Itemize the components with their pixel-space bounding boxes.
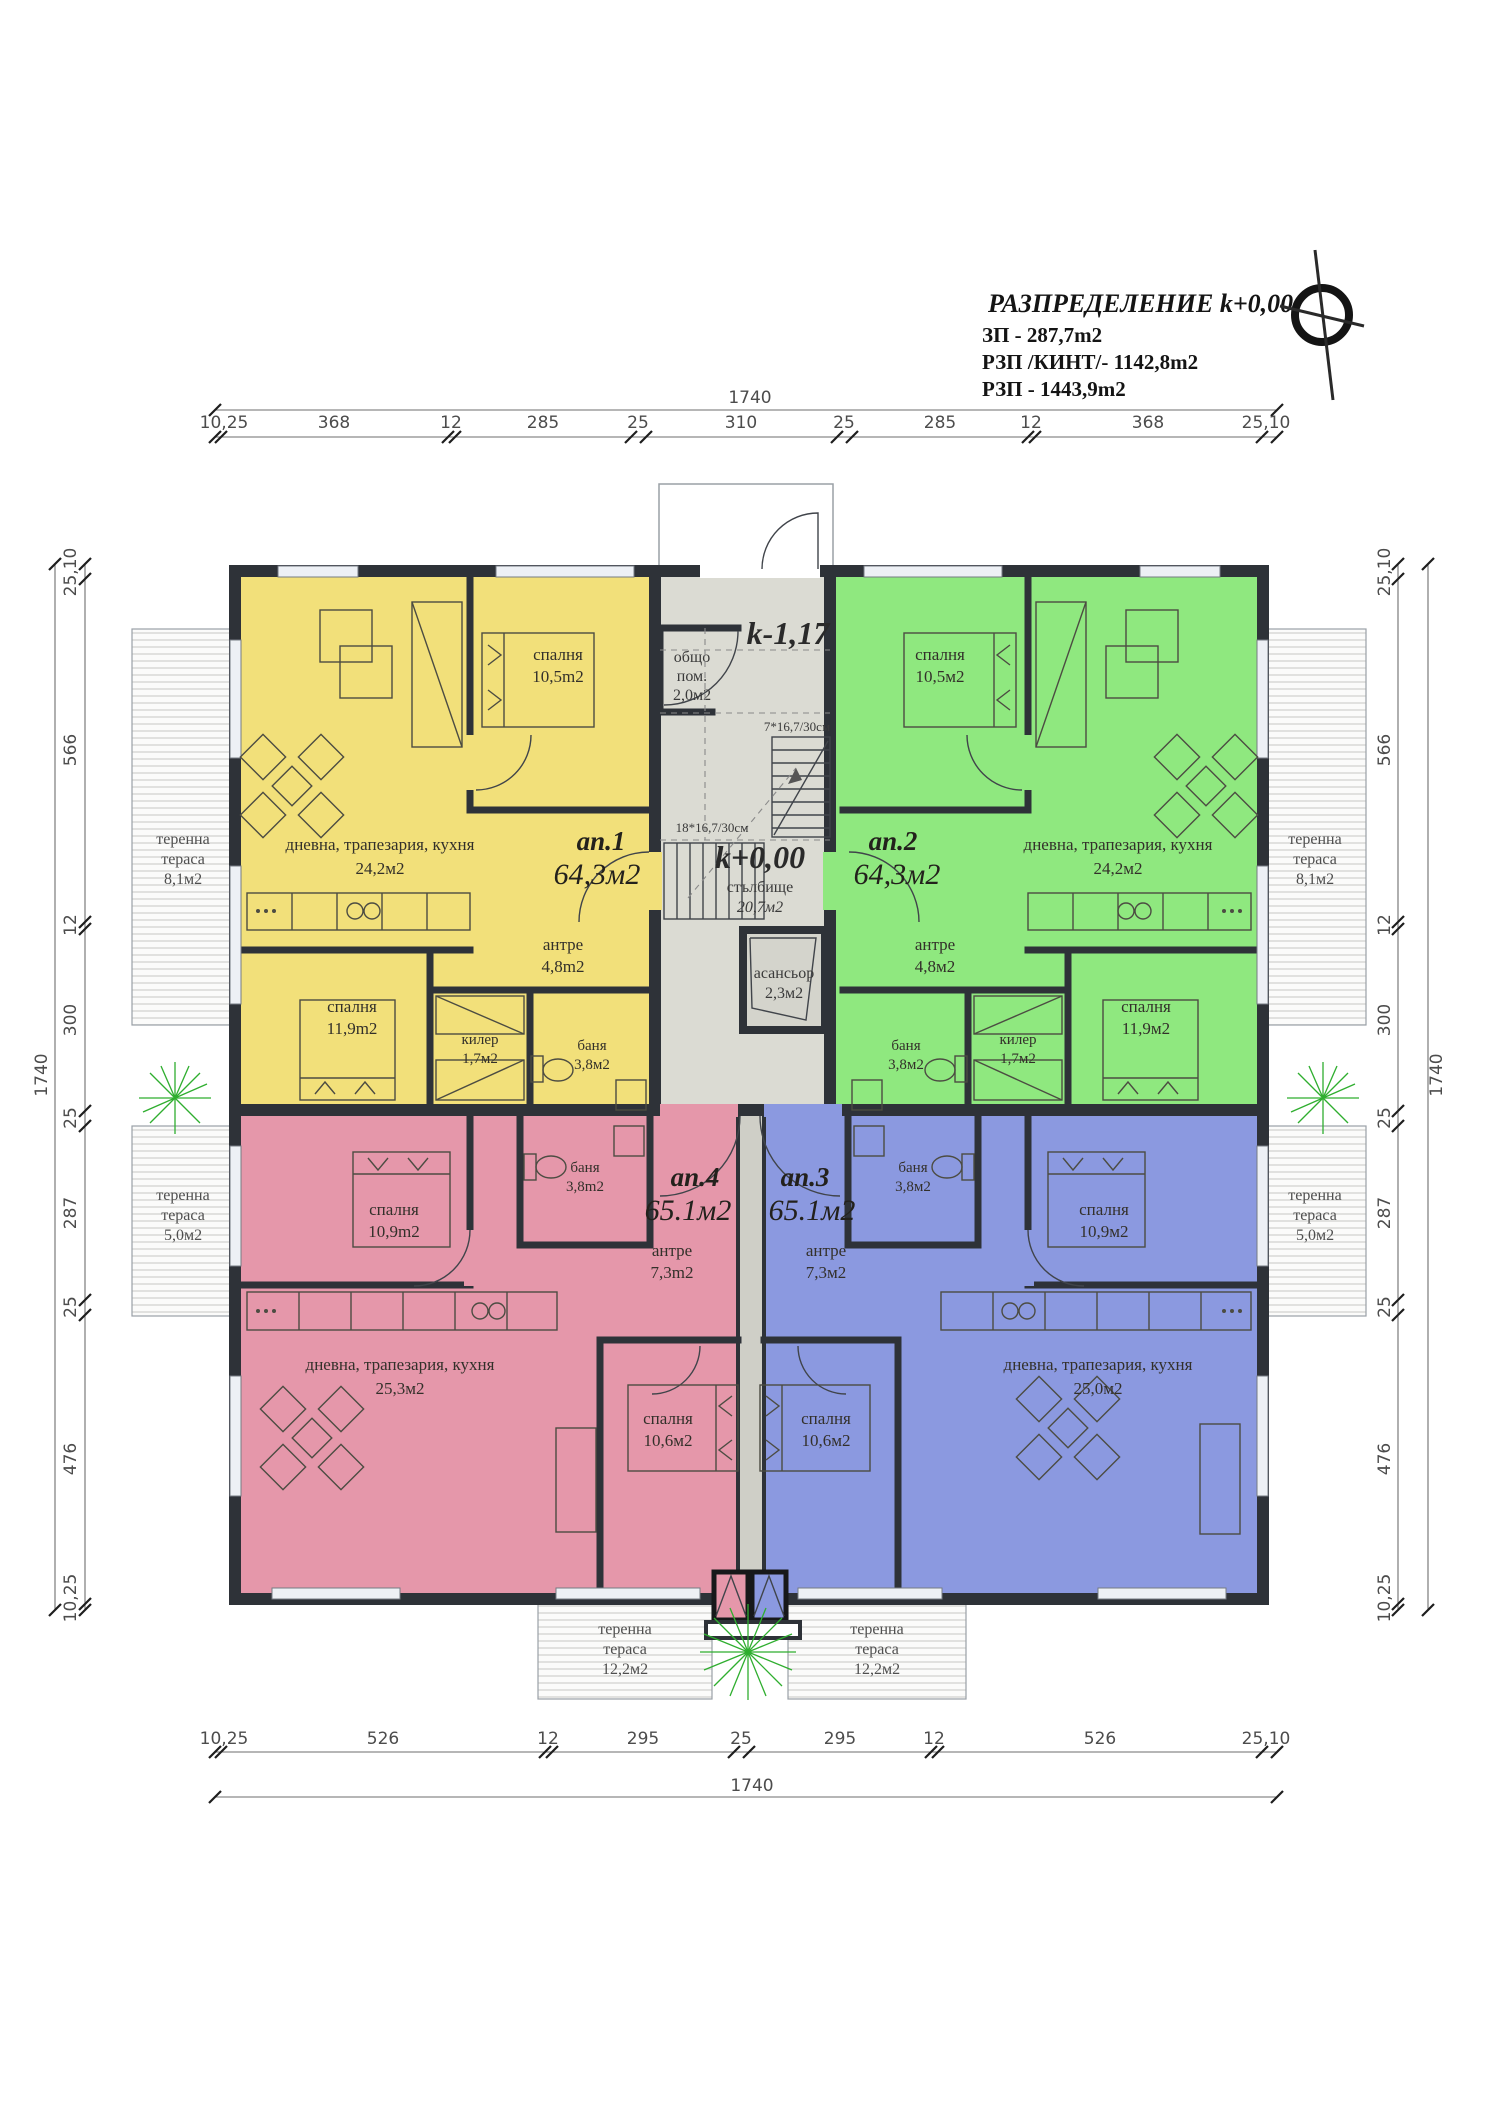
dimension-total: 1740 bbox=[728, 388, 771, 408]
svg-text:4,8m2: 4,8m2 bbox=[542, 957, 585, 976]
svg-text:тераса: тераса bbox=[603, 1641, 647, 1658]
tree bbox=[139, 1062, 211, 1134]
svg-text:25: 25 bbox=[833, 413, 855, 433]
svg-text:295: 295 bbox=[627, 1729, 659, 1749]
svg-text:7*16,7/30см: 7*16,7/30см bbox=[764, 719, 830, 734]
svg-text:дневна, трапезария, кухня: дневна, трапезария, кухня bbox=[286, 835, 475, 854]
svg-text:8,1м2: 8,1м2 bbox=[164, 871, 202, 888]
basement-light-wells bbox=[706, 1572, 800, 1638]
svg-text:спалня: спалня bbox=[643, 1409, 693, 1428]
dimension-bottom: 10,25 526 12 295 25 295 12 526 25,10 174… bbox=[200, 1729, 1291, 1803]
svg-text:7,3м2: 7,3м2 bbox=[806, 1263, 847, 1282]
terrace-left-mid-label: теренна тераса 5,0м2 bbox=[156, 1187, 209, 1244]
elevator: асансьор 2,3м2 bbox=[743, 930, 825, 1030]
svg-text:дневна, трапезария, кухня: дневна, трапезария, кухня bbox=[1004, 1355, 1193, 1374]
svg-text:теренна: теренна bbox=[156, 1187, 209, 1204]
dimension-total: 1740 bbox=[32, 1053, 52, 1096]
svg-text:баня: баня bbox=[577, 1038, 606, 1054]
apartment-area: 65.1м2 bbox=[769, 1194, 856, 1227]
entry-level-label: k-1,17 bbox=[747, 615, 832, 651]
svg-text:368: 368 bbox=[318, 413, 350, 433]
apartment-id: ап.3 bbox=[781, 1162, 830, 1192]
svg-text:11,9м2: 11,9м2 bbox=[1122, 1019, 1170, 1038]
svg-text:566: 566 bbox=[61, 734, 81, 766]
title-block: РАЗПРЕДЕЛЕНИЕ k+0,00 ЗП - 287,7m2 РЗП /К… bbox=[982, 289, 1293, 401]
svg-text:антре: антре bbox=[543, 935, 583, 954]
svg-text:25,10: 25,10 bbox=[1375, 548, 1395, 597]
svg-text:10,25: 10,25 bbox=[200, 413, 249, 433]
svg-text:12: 12 bbox=[537, 1729, 559, 1749]
svg-text:10,6м2: 10,6м2 bbox=[801, 1431, 850, 1450]
svg-text:526: 526 bbox=[1084, 1729, 1116, 1749]
tree bbox=[1287, 1062, 1359, 1134]
svg-text:25,10: 25,10 bbox=[1242, 1729, 1291, 1749]
north-arrow-icon bbox=[1280, 250, 1364, 400]
svg-text:антре: антре bbox=[915, 935, 955, 954]
svg-text:теренна: теренна bbox=[1288, 831, 1341, 848]
svg-text:25: 25 bbox=[1375, 1107, 1395, 1129]
svg-text:пом.: пом. bbox=[677, 668, 707, 685]
svg-text:300: 300 bbox=[61, 1004, 81, 1036]
svg-text:спалня: спалня bbox=[801, 1409, 851, 1428]
svg-text:3,8m2: 3,8m2 bbox=[566, 1179, 604, 1195]
svg-text:спалня: спалня bbox=[533, 645, 583, 664]
svg-text:12: 12 bbox=[61, 914, 81, 936]
svg-text:10,25: 10,25 bbox=[1375, 1574, 1395, 1623]
apartment-area: 64,3м2 bbox=[854, 858, 941, 891]
dimension-total: 1740 bbox=[730, 1776, 773, 1796]
svg-text:1,7м2: 1,7м2 bbox=[462, 1051, 498, 1067]
svg-text:спалня: спалня bbox=[1079, 1200, 1129, 1219]
sheet-title: РАЗПРЕДЕЛЕНИЕ k+0,00 bbox=[987, 289, 1293, 318]
apartment-id: ап.1 bbox=[577, 826, 626, 856]
floor-level-label: k+0,00 bbox=[715, 839, 805, 875]
elevator-label: асансьор bbox=[754, 965, 814, 982]
apartment-id: ап.2 bbox=[869, 826, 918, 856]
svg-text:295: 295 bbox=[824, 1729, 856, 1749]
svg-text:287: 287 bbox=[61, 1197, 81, 1229]
svg-text:566: 566 bbox=[1375, 734, 1395, 766]
svg-text:килер: килер bbox=[462, 1032, 499, 1048]
svg-text:теренна: теренна bbox=[1288, 1187, 1341, 1204]
svg-text:баня: баня bbox=[898, 1160, 927, 1176]
svg-text:25,10: 25,10 bbox=[61, 548, 81, 597]
svg-text:дневна, трапезария, кухня: дневна, трапезария, кухня bbox=[306, 1355, 495, 1374]
terrace-left-top-label: теренна тераса 8,1м2 bbox=[156, 831, 209, 888]
svg-text:10,5м2: 10,5м2 bbox=[915, 667, 964, 686]
svg-text:3,8м2: 3,8м2 bbox=[888, 1057, 924, 1073]
stairwell-area: 20,7м2 bbox=[737, 899, 783, 916]
svg-text:1,7м2: 1,7м2 bbox=[1000, 1051, 1036, 1067]
svg-text:антре: антре bbox=[652, 1241, 692, 1260]
svg-text:4,8м2: 4,8м2 bbox=[915, 957, 956, 976]
svg-text:285: 285 bbox=[924, 413, 956, 433]
svg-text:спалня: спалня bbox=[915, 645, 965, 664]
svg-text:тераса: тераса bbox=[1293, 1207, 1337, 1224]
terrace-bottom-left-label: теренна тераса 12,2м2 bbox=[598, 1621, 651, 1678]
svg-text:25,0м2: 25,0м2 bbox=[1073, 1379, 1122, 1398]
svg-text:476: 476 bbox=[61, 1443, 81, 1475]
svg-text:тераса: тераса bbox=[1293, 851, 1337, 868]
svg-text:килер: килер bbox=[1000, 1032, 1037, 1048]
apartment-area: 64,3м2 bbox=[554, 858, 641, 891]
floor-plan-sheet: РАЗПРЕДЕЛЕНИЕ k+0,00 ЗП - 287,7m2 РЗП /К… bbox=[0, 0, 1500, 2122]
zp-value: ЗП - 287,7m2 bbox=[982, 323, 1102, 347]
svg-text:25: 25 bbox=[61, 1296, 81, 1318]
apartment-4-region bbox=[241, 1110, 738, 1593]
svg-text:25: 25 bbox=[61, 1107, 81, 1129]
svg-text:18*16,7/30см: 18*16,7/30см bbox=[676, 820, 749, 835]
svg-text:теренна: теренна bbox=[850, 1621, 903, 1638]
tree bbox=[700, 1604, 796, 1700]
rzp-kint-value: РЗП /КИНТ/- 1142,8m2 bbox=[982, 350, 1198, 374]
svg-text:10,9м2: 10,9м2 bbox=[1079, 1222, 1128, 1241]
svg-text:12,2м2: 12,2м2 bbox=[602, 1661, 648, 1678]
svg-text:285: 285 bbox=[527, 413, 559, 433]
terrace-left-top bbox=[132, 629, 235, 1025]
svg-text:10,6м2: 10,6м2 bbox=[643, 1431, 692, 1450]
rzp-value: РЗП - 1443,9m2 bbox=[982, 377, 1126, 401]
terrace-right-top-label: теренна тераса 8,1м2 bbox=[1288, 831, 1341, 888]
svg-text:12: 12 bbox=[440, 413, 462, 433]
svg-text:25,3м2: 25,3м2 bbox=[375, 1379, 424, 1398]
party-wall bbox=[738, 1110, 764, 1599]
svg-text:368: 368 bbox=[1132, 413, 1164, 433]
svg-text:теренна: теренна bbox=[156, 831, 209, 848]
svg-text:баня: баня bbox=[891, 1038, 920, 1054]
svg-text:теренна: теренна bbox=[598, 1621, 651, 1638]
svg-text:тераса: тераса bbox=[855, 1641, 899, 1658]
svg-text:дневна, трапезария, кухня: дневна, трапезария, кухня bbox=[1024, 835, 1213, 854]
svg-text:25,10: 25,10 bbox=[1242, 413, 1291, 433]
apartment-id: ап.4 bbox=[671, 1162, 720, 1192]
svg-text:25: 25 bbox=[627, 413, 649, 433]
svg-text:24,2м2: 24,2м2 bbox=[355, 859, 404, 878]
stairwell-label: стълбище bbox=[727, 879, 793, 896]
svg-text:12: 12 bbox=[1020, 413, 1042, 433]
svg-text:тераса: тераса bbox=[161, 851, 205, 868]
svg-text:310: 310 bbox=[725, 413, 757, 433]
svg-text:300: 300 bbox=[1375, 1004, 1395, 1036]
svg-text:11,9m2: 11,9m2 bbox=[327, 1019, 378, 1038]
svg-text:12: 12 bbox=[1375, 914, 1395, 936]
terrace-right-mid-label: теренна тераса 5,0м2 bbox=[1288, 1187, 1341, 1244]
dimension-total: 1740 bbox=[1427, 1053, 1447, 1096]
svg-text:3,8м2: 3,8м2 bbox=[574, 1057, 610, 1073]
svg-text:287: 287 bbox=[1375, 1197, 1395, 1229]
apartment-fills bbox=[241, 571, 1257, 1599]
apartment-area: 65.1м2 bbox=[645, 1194, 732, 1227]
svg-text:8,1м2: 8,1м2 bbox=[1296, 871, 1334, 888]
svg-text:526: 526 bbox=[367, 1729, 399, 1749]
svg-text:10,25: 10,25 bbox=[200, 1729, 249, 1749]
svg-text:тераса: тераса bbox=[161, 1207, 205, 1224]
svg-text:10,5m2: 10,5m2 bbox=[532, 667, 583, 686]
svg-text:спалня: спалня bbox=[1121, 997, 1171, 1016]
svg-text:12,2м2: 12,2м2 bbox=[854, 1661, 900, 1678]
terrace-right-top bbox=[1263, 629, 1366, 1025]
svg-text:476: 476 bbox=[1375, 1443, 1395, 1475]
svg-text:антре: антре bbox=[806, 1241, 846, 1260]
dimension-left: 1740 25,10 566 12 300 25 287 25 476 10,2… bbox=[32, 548, 91, 1623]
svg-text:5,0м2: 5,0м2 bbox=[1296, 1227, 1334, 1244]
floor-plan-drawing: РАЗПРЕДЕЛЕНИЕ k+0,00 ЗП - 287,7m2 РЗП /К… bbox=[0, 0, 1500, 2122]
svg-text:7,3m2: 7,3m2 bbox=[651, 1263, 694, 1282]
svg-text:24,2м2: 24,2м2 bbox=[1093, 859, 1142, 878]
elevator-area: 2,3м2 bbox=[765, 985, 803, 1002]
svg-text:баня: баня bbox=[570, 1160, 599, 1176]
svg-text:25: 25 bbox=[730, 1729, 752, 1749]
porch-outline bbox=[659, 484, 833, 571]
entrance-porch bbox=[659, 484, 833, 571]
svg-text:3,8м2: 3,8м2 bbox=[895, 1179, 931, 1195]
dimension-top: 1740 10,25 368 12 285 25 310 25 285 12 3… bbox=[200, 388, 1291, 443]
dimension-right: 25,10 566 12 300 25 287 25 476 10,25 174… bbox=[1375, 548, 1447, 1623]
svg-text:12: 12 bbox=[923, 1729, 945, 1749]
svg-text:спалня: спалня bbox=[369, 1200, 419, 1219]
apartment-3-region bbox=[764, 1110, 1257, 1593]
terrace-bottom-right-label: теренна тераса 12,2м2 bbox=[850, 1621, 903, 1678]
svg-text:5,0м2: 5,0м2 bbox=[164, 1227, 202, 1244]
svg-text:спалня: спалня bbox=[327, 997, 377, 1016]
svg-text:25: 25 bbox=[1375, 1296, 1395, 1318]
svg-text:10,9m2: 10,9m2 bbox=[368, 1222, 419, 1241]
svg-text:10,25: 10,25 bbox=[61, 1574, 81, 1623]
